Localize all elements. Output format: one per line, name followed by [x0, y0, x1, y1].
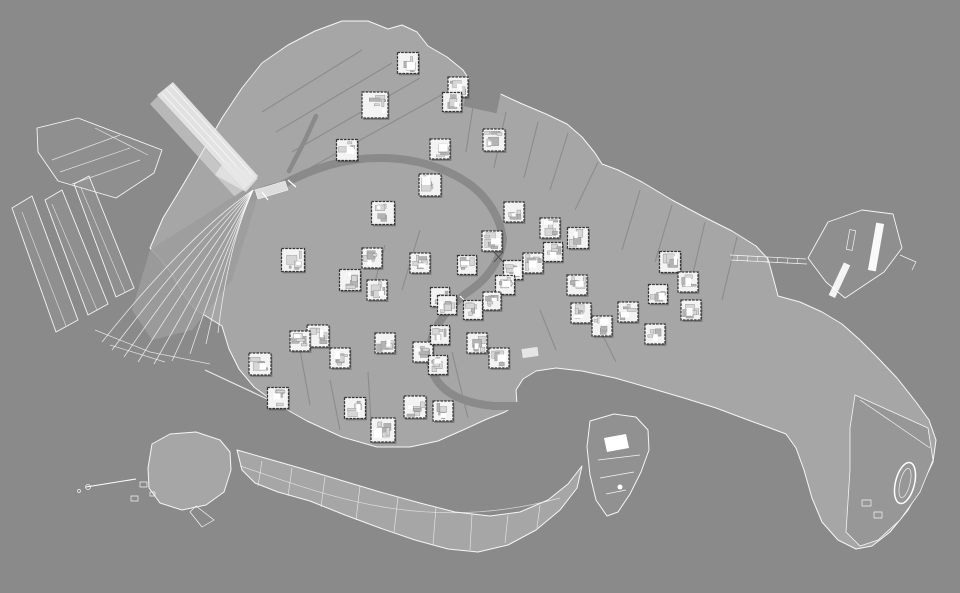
map-tile-marker[interactable] — [438, 296, 458, 317]
map-tile-marker[interactable] — [404, 396, 427, 420]
map-tile-marker[interactable] — [330, 348, 351, 370]
map-tile-marker[interactable] — [458, 256, 478, 277]
map-tile-marker[interactable] — [268, 388, 290, 411]
map-tile-marker[interactable] — [523, 253, 544, 275]
map-viewport — [0, 0, 960, 593]
map-tile-marker[interactable] — [649, 285, 669, 306]
map-tile-marker[interactable] — [362, 248, 383, 270]
map-tile-marker[interactable] — [430, 139, 451, 161]
map-tile-marker[interactable] — [431, 326, 451, 347]
map-tile-marker[interactable] — [375, 333, 396, 355]
map-tile-marker[interactable] — [482, 231, 503, 253]
map-tile-marker[interactable] — [567, 275, 588, 297]
map-tile-marker[interactable] — [464, 301, 484, 322]
map-tile-marker[interactable] — [540, 218, 561, 240]
map-tile-marker[interactable] — [504, 202, 525, 224]
map-tile-marker[interactable] — [433, 401, 454, 423]
map-tile-marker[interactable] — [398, 53, 420, 76]
venice-figure-ground-map — [0, 0, 960, 593]
map-tile-marker[interactable] — [443, 93, 463, 114]
map-tile-marker[interactable] — [345, 398, 367, 421]
map-tile-marker[interactable] — [645, 324, 666, 346]
map-tile-marker[interactable] — [483, 292, 502, 312]
map-tile-marker[interactable] — [372, 202, 396, 227]
map-tile-marker[interactable] — [410, 253, 431, 275]
map-tile-marker[interactable] — [367, 280, 388, 302]
map-tile-marker[interactable] — [618, 302, 639, 324]
map-tile-marker[interactable] — [681, 300, 702, 322]
map-tile-marker[interactable] — [483, 129, 506, 153]
map-tile-marker[interactable] — [249, 353, 272, 377]
map-tile-marker[interactable] — [660, 252, 682, 275]
map-tile-marker[interactable] — [467, 333, 488, 355]
map-tile-marker[interactable] — [489, 348, 510, 370]
map-tile-marker[interactable] — [571, 303, 592, 325]
map-tile-marker[interactable] — [429, 356, 449, 377]
map-tile-marker[interactable] — [282, 249, 306, 274]
map-tile-marker[interactable] — [371, 418, 396, 444]
map-tile-marker[interactable] — [337, 140, 359, 163]
map-tile-marker[interactable] — [544, 243, 564, 264]
map-tile-marker[interactable] — [340, 270, 362, 293]
map-tile-marker[interactable] — [678, 272, 699, 294]
map-tile-marker[interactable] — [419, 174, 442, 198]
map-tile-marker[interactable] — [362, 92, 389, 120]
map-tile-marker[interactable] — [290, 331, 311, 353]
map-tile-marker[interactable] — [592, 316, 613, 338]
map-tile-marker[interactable] — [568, 228, 590, 251]
